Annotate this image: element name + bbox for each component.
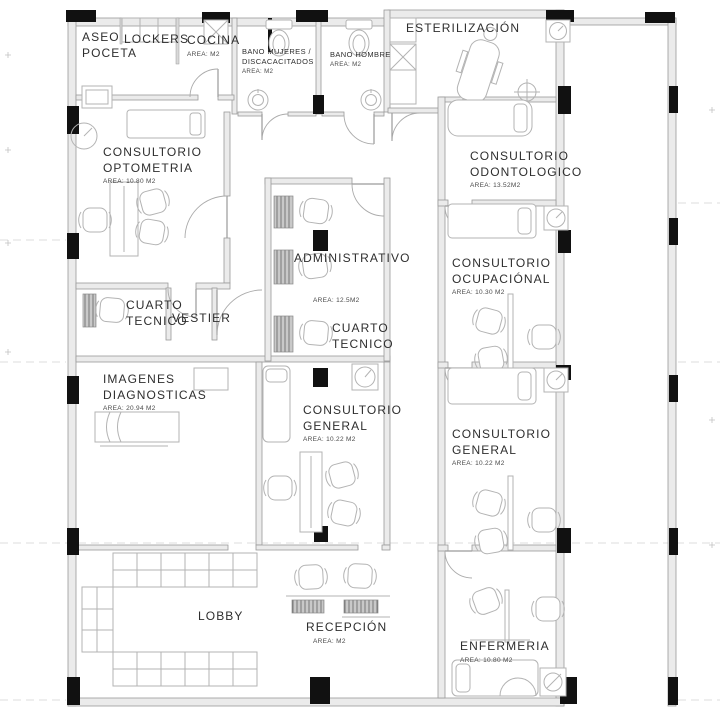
clock-icon-odontologico xyxy=(544,206,568,230)
room-area: AREA: 12.5M2 xyxy=(313,297,411,304)
room-label-vestier: VESTIER xyxy=(172,311,231,327)
clock-icon-general-centro xyxy=(352,364,378,390)
room-name: CONSULTORIO ODONTOLOGICO xyxy=(470,149,582,180)
room-label-administrativo: ADMINISTRATIVO AREA: 12.5M2 xyxy=(294,251,411,304)
sink-icon-mujeres xyxy=(248,89,268,110)
furniture-general-centro xyxy=(263,364,378,532)
room-area: AREA: 10.80 M2 xyxy=(460,657,550,664)
room-label-general-der: CONSULTORIO GENERAL AREA: 10.22 M2 xyxy=(452,427,551,467)
room-name: CONSULTORIO OPTOMETRIA xyxy=(103,145,202,176)
room-label-bano-mujeres: BANO MUJERES / DISCACACITADOS AREA: M2 xyxy=(242,47,314,75)
room-area: AREA: 10.30 M2 xyxy=(452,289,551,296)
room-label-esterilizacion: ESTERILIZACIÓN xyxy=(406,21,520,37)
lobby-bench-left xyxy=(82,587,113,652)
room-name: RECEPCIÓN xyxy=(306,620,387,636)
room-label-cocina: COCINA AREA: M2 xyxy=(187,33,240,58)
room-name: ESTERILIZACIÓN xyxy=(406,21,520,37)
room-name: ENFERMERIA xyxy=(460,639,550,655)
room-area: AREA: M2 xyxy=(330,61,391,68)
lobby-bench-bottom xyxy=(113,652,257,686)
clock-icon-esterilizacion xyxy=(546,20,570,42)
room-name: ADMINISTRATIVO xyxy=(294,251,411,267)
room-name: IMAGENES DIAGNOSTICAS xyxy=(103,372,207,403)
sink-icon-hombre xyxy=(361,89,381,110)
lobby-bench-top xyxy=(113,553,257,587)
room-area: AREA: M2 xyxy=(313,638,387,645)
room-area: AREA: 10.80 M2 xyxy=(103,178,202,185)
room-name: LOCKERS xyxy=(124,32,189,48)
floor-plan-drawing xyxy=(0,0,720,720)
room-name: CONSULTORIO GENERAL xyxy=(452,427,551,458)
clock-icon-general-der xyxy=(544,368,568,392)
room-area: AREA: M2 xyxy=(187,51,240,58)
room-area: AREA: 10.22 M2 xyxy=(452,460,551,467)
room-name: BANO HOMBRE xyxy=(330,50,391,60)
furniture-cuarto-tecnico xyxy=(83,294,129,327)
floor-plan-canvas: ASEO POCETA LOCKERS COCINA AREA: M2 BANO… xyxy=(0,0,720,720)
room-name: CONSULTORIO OCUPACIÓNAL xyxy=(452,256,551,287)
room-area: AREA: 20.94 M2 xyxy=(103,405,207,412)
sink-icon-enfermeria xyxy=(540,668,566,696)
room-area: AREA: 10.22 M2 xyxy=(303,436,402,443)
room-label-bano-hombre: BANO HOMBRE AREA: M2 xyxy=(330,50,391,68)
room-area: AREA: M2 xyxy=(242,68,314,75)
furniture-aseo xyxy=(82,86,112,108)
room-name: VESTIER xyxy=(172,311,231,327)
room-label-general-centro: CONSULTORIO GENERAL AREA: 10.22 M2 xyxy=(303,403,402,443)
room-name: CONSULTORIO GENERAL xyxy=(303,403,402,434)
room-name: LOBBY xyxy=(198,609,244,625)
room-area: AREA: 13.52M2 xyxy=(470,182,582,189)
room-name: COCINA xyxy=(187,33,240,49)
room-label-enfermeria: ENFERMERIA AREA: 10.80 M2 xyxy=(460,639,550,664)
furniture-recepcion xyxy=(286,563,390,617)
room-label-recepcion: RECEPCIÓN AREA: M2 xyxy=(306,620,387,645)
room-label-lockers: LOCKERS xyxy=(124,32,189,48)
room-name: BANO MUJERES / DISCACACITADOS xyxy=(242,47,314,67)
room-label-imagenes: IMAGENES DIAGNOSTICAS AREA: 20.94 M2 xyxy=(103,372,207,412)
room-label-ocupacional: CONSULTORIO OCUPACIÓNAL AREA: 10.30 M2 xyxy=(452,256,551,296)
room-name: CUARTO TECNICO xyxy=(332,321,394,352)
room-label-lobby: LOBBY xyxy=(198,609,244,625)
room-label-optometria: CONSULTORIO OPTOMETRIA AREA: 10.80 M2 xyxy=(103,145,202,185)
room-label-cuarto-tecnico-centro: CUARTO TECNICO xyxy=(332,321,394,352)
room-label-odontologico: CONSULTORIO ODONTOLOGICO AREA: 13.52M2 xyxy=(470,149,582,189)
